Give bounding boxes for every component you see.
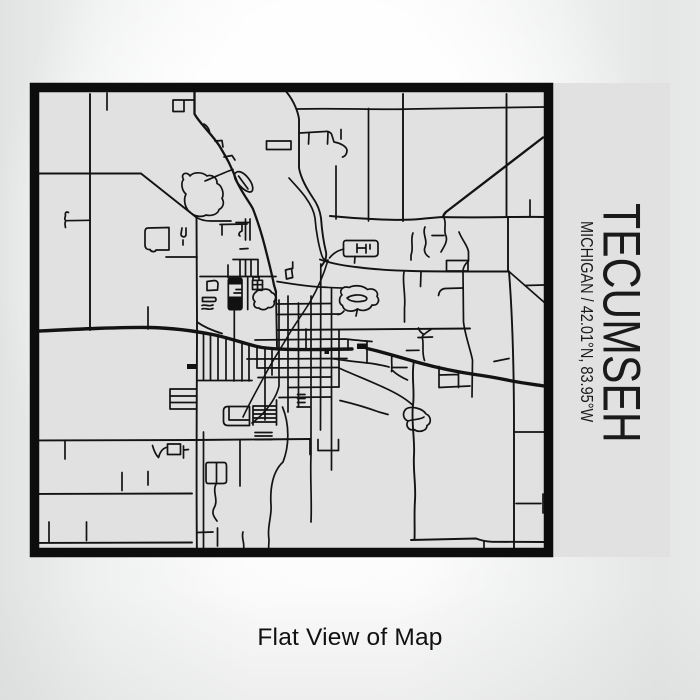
svg-text:MICHIGAN / 42.01°N, 83.95°W: MICHIGAN / 42.01°N, 83.95°W	[576, 221, 594, 422]
svg-text:TECUMSEH: TECUMSEH	[591, 203, 650, 443]
